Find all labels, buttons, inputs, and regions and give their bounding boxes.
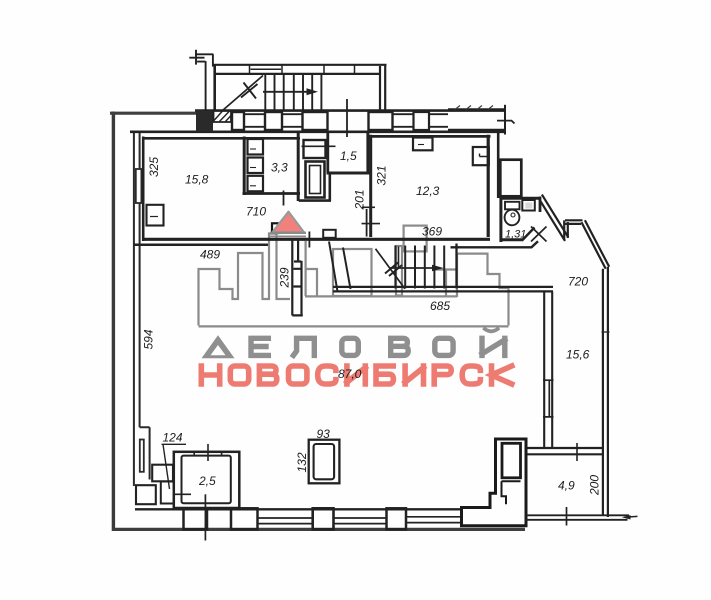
svg-text:710: 710	[246, 205, 266, 219]
svg-text:2,5: 2,5	[198, 474, 216, 488]
svg-text:15,6: 15,6	[566, 348, 590, 362]
svg-text:132: 132	[295, 452, 309, 472]
svg-text:685: 685	[430, 299, 450, 313]
svg-text:720: 720	[568, 275, 588, 289]
svg-text:3,3: 3,3	[271, 161, 288, 175]
svg-text:369: 369	[422, 225, 442, 239]
svg-text:325: 325	[147, 157, 161, 177]
svg-text:1,5: 1,5	[340, 149, 357, 163]
svg-text:87,0: 87,0	[338, 367, 362, 381]
svg-text:321: 321	[375, 165, 389, 185]
svg-text:239: 239	[278, 267, 292, 288]
svg-text:15,8: 15,8	[185, 173, 209, 187]
svg-text:489: 489	[200, 248, 220, 262]
svg-text:4,9: 4,9	[558, 479, 575, 493]
svg-text:594: 594	[142, 329, 156, 349]
svg-text:200: 200	[588, 475, 602, 496]
svg-text:201: 201	[353, 189, 367, 210]
svg-text:124: 124	[163, 431, 183, 445]
svg-text:12,3: 12,3	[416, 184, 440, 198]
svg-text:93: 93	[317, 427, 331, 441]
svg-text:1,31: 1,31	[505, 229, 526, 241]
